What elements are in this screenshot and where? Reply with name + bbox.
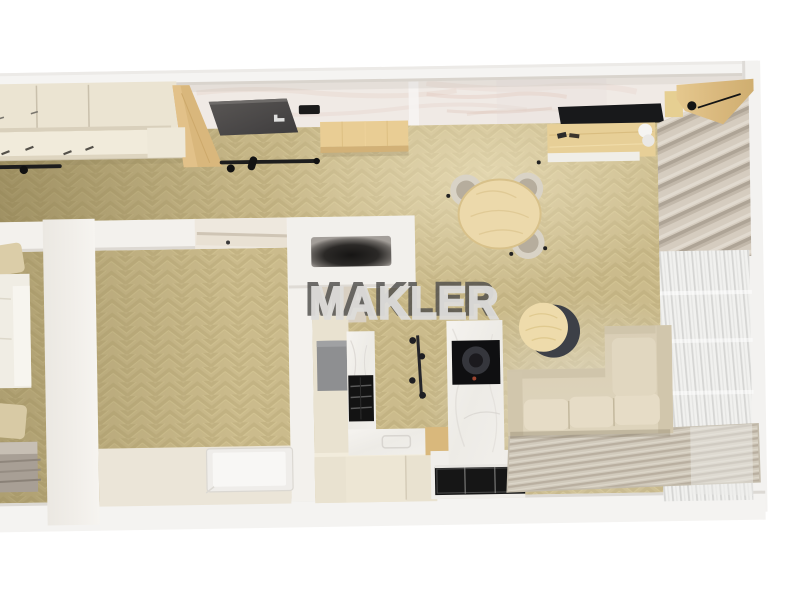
svg-text:MAKLER: MAKLER — [310, 279, 500, 329]
